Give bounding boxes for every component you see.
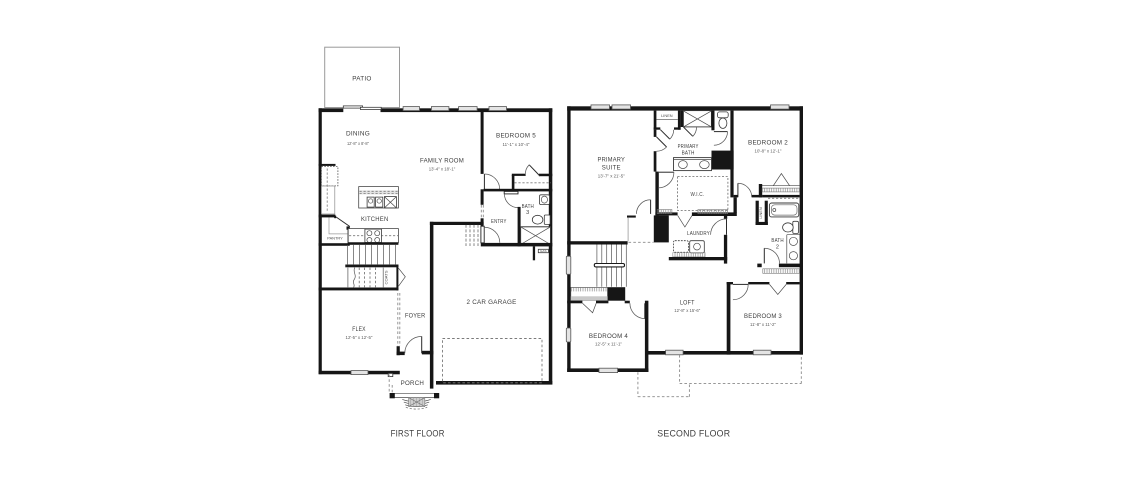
svg-text:FIRST FLOOR: FIRST FLOOR <box>391 428 445 439</box>
svg-text:PRIMARY: PRIMARY <box>678 144 699 150</box>
svg-text:FAMILY ROOM: FAMILY ROOM <box>420 158 464 165</box>
svg-text:SECOND FLOOR: SECOND FLOOR <box>657 428 730 439</box>
svg-text:FOYER: FOYER <box>405 313 426 320</box>
svg-text:LAUNDRY: LAUNDRY <box>687 231 710 237</box>
svg-text:12'-5" x 12'-5": 12'-5" x 12'-5" <box>346 335 374 340</box>
svg-text:12'-8" x 8'-8": 12'-8" x 8'-8" <box>347 141 369 146</box>
svg-text:2: 2 <box>776 245 779 251</box>
svg-text:PORCH: PORCH <box>401 380 425 387</box>
svg-text:12'-8" x 15'-6": 12'-8" x 15'-6" <box>674 308 701 313</box>
svg-text:PRIMARY: PRIMARY <box>598 157 626 164</box>
svg-text:PANTRY: PANTRY <box>327 237 343 241</box>
svg-text:SUITE: SUITE <box>602 165 621 172</box>
svg-text:BEDROOM 2: BEDROOM 2 <box>748 140 788 147</box>
svg-text:BATH: BATH <box>771 238 783 244</box>
svg-text:LOFT: LOFT <box>680 299 695 306</box>
svg-text:2 CAR GARAGE: 2 CAR GARAGE <box>467 299 517 306</box>
svg-text:13'-7" x 21'-5": 13'-7" x 21'-5" <box>598 174 626 179</box>
svg-text:BATH: BATH <box>522 204 534 210</box>
svg-text:11'-1" x 10'-4": 11'-1" x 10'-4" <box>503 142 531 147</box>
svg-text:BEDROOM 4: BEDROOM 4 <box>589 333 628 340</box>
svg-text:13'-4" x 18'-1": 13'-4" x 18'-1" <box>429 167 456 172</box>
svg-text:FLEX: FLEX <box>352 326 366 333</box>
svg-text:3: 3 <box>526 210 529 216</box>
svg-text:W.I.C.: W.I.C. <box>691 192 705 198</box>
svg-text:BEDROOM 3: BEDROOM 3 <box>744 313 782 320</box>
svg-text:ENTRY: ENTRY <box>491 219 507 225</box>
svg-text:12'-5" x 11'-1": 12'-5" x 11'-1" <box>595 341 623 346</box>
svg-text:LINEN: LINEN <box>661 114 673 118</box>
svg-text:LINEN: LINEN <box>759 207 763 219</box>
svg-text:COATS: COATS <box>384 270 388 285</box>
svg-text:BATH: BATH <box>682 151 695 157</box>
svg-text:11'-8" x 11'-2": 11'-8" x 11'-2" <box>750 322 777 327</box>
svg-text:GAS: GAS <box>540 249 547 253</box>
svg-text:10'-8" x 12'-1": 10'-8" x 12'-1" <box>755 148 783 153</box>
svg-text:KITCHEN: KITCHEN <box>361 216 389 223</box>
svg-text:PATIO: PATIO <box>352 76 371 83</box>
svg-text:BEDROOM 5: BEDROOM 5 <box>496 133 536 140</box>
svg-text:DINING: DINING <box>346 130 370 137</box>
